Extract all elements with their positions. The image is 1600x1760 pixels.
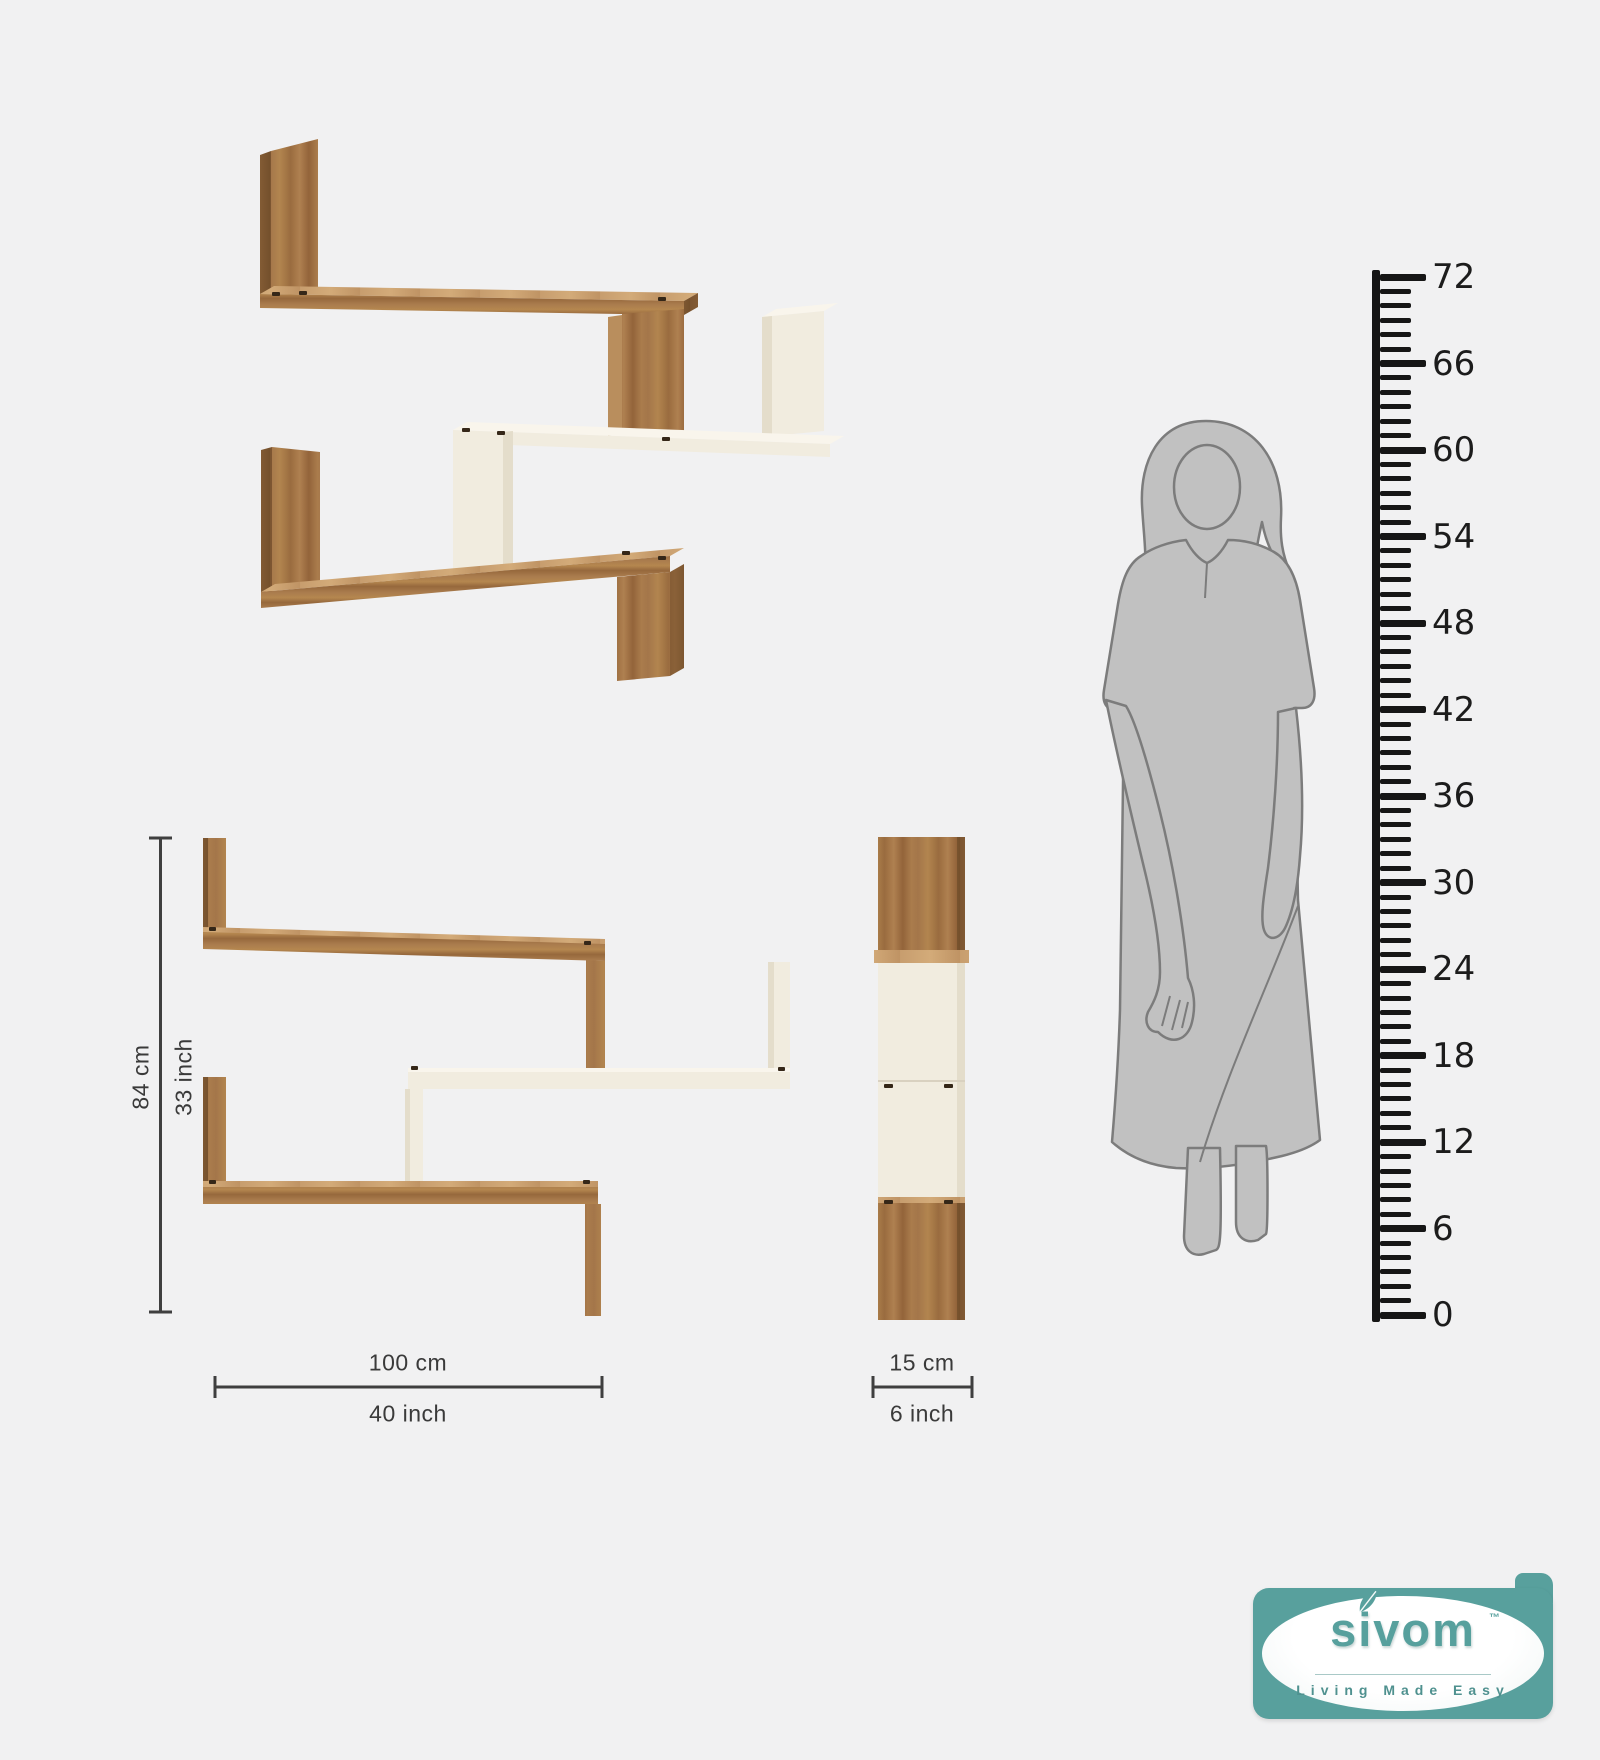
ruler-tick bbox=[1380, 1298, 1411, 1303]
ruler-tick bbox=[1380, 1225, 1426, 1232]
ruler-tick bbox=[1380, 620, 1426, 627]
ruler-tick bbox=[1380, 1082, 1411, 1087]
ruler-tick bbox=[1380, 476, 1411, 481]
ruler-tick bbox=[1380, 520, 1411, 525]
wood-panel-edge bbox=[203, 1077, 208, 1187]
width-label-inch: 40 inch bbox=[369, 1401, 447, 1428]
ruler-tick bbox=[1380, 895, 1411, 900]
screw-marks bbox=[209, 927, 785, 1184]
ruler-tick bbox=[1380, 1169, 1411, 1174]
ruler-tick bbox=[1380, 592, 1411, 597]
ruler-tick bbox=[1380, 491, 1411, 496]
white-panel-shade bbox=[762, 316, 772, 437]
left-leg bbox=[1184, 1148, 1221, 1255]
wood-panel-side bbox=[261, 447, 272, 594]
brand-tagline: Living Made Easy bbox=[1253, 1682, 1553, 1698]
ruler-tick-label: 36 bbox=[1432, 775, 1512, 817]
ruler-tick-label: 18 bbox=[1432, 1035, 1512, 1077]
ruler-tick bbox=[1380, 419, 1411, 424]
ruler-tick bbox=[1380, 966, 1426, 973]
ruler-tick-label: 12 bbox=[1432, 1121, 1512, 1163]
height-label-cm: 84 cm bbox=[128, 1044, 155, 1109]
ruler-tick bbox=[1380, 750, 1411, 755]
ruler-tick bbox=[1380, 332, 1411, 337]
trademark-symbol: ™ bbox=[1489, 1612, 1500, 1624]
ruler-tick-label: 0 bbox=[1432, 1294, 1512, 1336]
ruler-tick bbox=[1380, 390, 1411, 395]
wood-panel-front bbox=[272, 447, 320, 590]
ruler-tick bbox=[1380, 693, 1411, 698]
dimension-lines bbox=[149, 838, 972, 1398]
shelf-3d-view bbox=[260, 139, 844, 681]
wood-leg-side bbox=[670, 564, 684, 676]
ruler-tick bbox=[1380, 375, 1411, 380]
ruler-tick bbox=[1380, 851, 1411, 856]
ruler-tick bbox=[1380, 563, 1411, 568]
divider-line bbox=[878, 1080, 965, 1082]
ruler-tick-label: 42 bbox=[1432, 689, 1512, 731]
depth-label-cm: 15 cm bbox=[889, 1350, 954, 1377]
ruler-tick bbox=[1380, 1096, 1411, 1101]
wood-panel-side bbox=[260, 151, 271, 294]
ruler-tick bbox=[1380, 981, 1411, 986]
ruler-tick bbox=[1380, 866, 1411, 871]
wood-leg bbox=[586, 960, 605, 1077]
ruler-tick bbox=[1380, 1068, 1411, 1073]
white-divider-shade bbox=[503, 431, 513, 579]
ruler-tick bbox=[1380, 347, 1411, 352]
ruler-tick bbox=[1380, 879, 1426, 886]
ruler-tick bbox=[1380, 1255, 1411, 1260]
ruler-spine bbox=[1372, 270, 1380, 1322]
wood-leg-front bbox=[622, 309, 684, 434]
ruler-tick bbox=[1380, 952, 1411, 957]
wood-block bbox=[878, 837, 965, 952]
ruler-tick bbox=[1380, 909, 1411, 914]
ruler-tick bbox=[1380, 1241, 1411, 1246]
ruler-tick bbox=[1380, 822, 1411, 827]
ruler-tick bbox=[1380, 649, 1411, 654]
ruler-tick bbox=[1380, 793, 1426, 800]
ruler-tick bbox=[1380, 1024, 1411, 1029]
wood-leg-front bbox=[617, 572, 670, 681]
ruler-tick bbox=[1380, 678, 1411, 683]
white-block bbox=[878, 963, 965, 1080]
ruler-tick bbox=[1380, 1010, 1411, 1015]
brand-name: sivom bbox=[1253, 1602, 1553, 1657]
right-leg bbox=[1236, 1146, 1268, 1241]
ruler-tick-label: 72 bbox=[1432, 256, 1512, 298]
ruler-tick-label: 54 bbox=[1432, 516, 1512, 558]
ruler-tick bbox=[1380, 318, 1411, 323]
ruler-tick-label: 48 bbox=[1432, 602, 1512, 644]
wood-panel-front bbox=[271, 139, 318, 292]
ruler-tick bbox=[1380, 664, 1411, 669]
ruler-tick bbox=[1380, 1154, 1411, 1159]
scene-graphics bbox=[0, 0, 1600, 1760]
wood-shelf-top bbox=[203, 1181, 598, 1187]
ruler-tick bbox=[1380, 404, 1411, 409]
ruler-tick bbox=[1380, 1052, 1426, 1059]
width-dimension-line bbox=[215, 1376, 602, 1398]
ruler-tick bbox=[1380, 635, 1411, 640]
logo-body: sivom ™ Living Made Easy bbox=[1253, 1588, 1553, 1719]
ruler-tick-label: 6 bbox=[1432, 1208, 1512, 1250]
ruler-tick bbox=[1380, 996, 1411, 1001]
wood-leg-side bbox=[608, 315, 622, 436]
white-divider-shade bbox=[405, 1089, 410, 1196]
ruler: 726660544842363024181260 bbox=[1372, 270, 1542, 1335]
ruler-tick bbox=[1380, 1039, 1411, 1044]
white-panel-shade bbox=[768, 962, 774, 1074]
height-label-inch: 33 inch bbox=[171, 1038, 198, 1116]
wood-block-edge bbox=[957, 1203, 965, 1320]
wood-block bbox=[878, 1197, 965, 1320]
ruler-tick bbox=[1380, 779, 1411, 784]
ruler-tick bbox=[1380, 765, 1411, 770]
shelf-side-view bbox=[874, 837, 969, 1320]
depth-dimension-line bbox=[873, 1376, 972, 1398]
ruler-tick bbox=[1380, 360, 1426, 367]
ruler-tick bbox=[1380, 1312, 1426, 1319]
ruler-tick-label: 60 bbox=[1432, 429, 1512, 471]
ruler-tick bbox=[1380, 923, 1411, 928]
ruler-tick bbox=[1380, 1139, 1426, 1146]
ruler-tick bbox=[1380, 289, 1411, 294]
white-block bbox=[878, 1082, 965, 1197]
brand-logo: sivom ™ Living Made Easy bbox=[1253, 1573, 1553, 1719]
width-label-cm: 100 cm bbox=[369, 1350, 447, 1377]
logo-divider bbox=[1315, 1674, 1491, 1675]
face bbox=[1174, 445, 1240, 529]
woman-silhouette bbox=[1104, 421, 1321, 1255]
ruler-tick bbox=[1380, 577, 1411, 582]
white-shelf bbox=[408, 1072, 790, 1089]
ruler-tick-label: 66 bbox=[1432, 343, 1512, 385]
ruler-tick-label: 30 bbox=[1432, 862, 1512, 904]
ruler-tick bbox=[1380, 808, 1411, 813]
product-dimension-sheet: 84 cm 33 inch 100 cm 40 inch 15 cm 6 inc… bbox=[0, 0, 1600, 1760]
ruler-tick bbox=[1380, 736, 1411, 741]
wood-strip bbox=[874, 950, 969, 963]
wood-panel-edge bbox=[203, 838, 208, 934]
ruler-tick bbox=[1380, 938, 1411, 943]
ruler-tick bbox=[1380, 462, 1411, 467]
ruler-tick-label: 24 bbox=[1432, 948, 1512, 990]
ruler-tick bbox=[1380, 533, 1426, 540]
ruler-tick bbox=[1380, 303, 1411, 308]
ruler-tick bbox=[1380, 548, 1411, 553]
wood-leg bbox=[585, 1204, 601, 1316]
ruler-tick bbox=[1380, 447, 1426, 454]
ruler-tick bbox=[1380, 1111, 1411, 1116]
ruler-tick bbox=[1380, 1269, 1411, 1274]
wood-block-edge bbox=[957, 837, 965, 952]
ruler-tick bbox=[1380, 1212, 1411, 1217]
ruler-tick bbox=[1380, 722, 1411, 727]
ruler-tick bbox=[1380, 433, 1411, 438]
ruler-tick bbox=[1380, 706, 1426, 713]
white-block-shade bbox=[957, 963, 965, 1080]
ruler-tick bbox=[1380, 606, 1411, 611]
ruler-tick bbox=[1380, 1183, 1411, 1188]
white-block-shade bbox=[957, 1082, 965, 1197]
shelf-front-view bbox=[203, 838, 790, 1316]
ruler-tick bbox=[1380, 837, 1411, 842]
ruler-tick bbox=[1380, 274, 1426, 281]
ruler-tick bbox=[1380, 1284, 1411, 1289]
ruler-tick bbox=[1380, 505, 1411, 510]
ruler-tick bbox=[1380, 1125, 1411, 1130]
ruler-tick bbox=[1380, 1197, 1411, 1202]
wood-shelf bbox=[203, 1187, 598, 1204]
depth-label-inch: 6 inch bbox=[890, 1401, 954, 1428]
